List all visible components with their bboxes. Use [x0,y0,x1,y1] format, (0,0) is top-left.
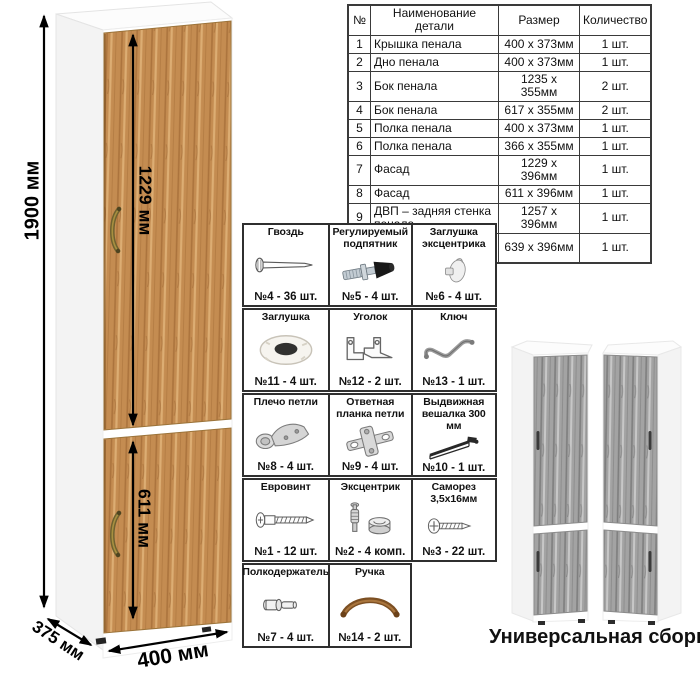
hardware-item-count: №10 - 1 шт. [422,462,485,474]
hardware-item-name: Ответная планка петли [331,397,411,421]
variant-cabinets [512,341,681,625]
height-dimension-label: 1900 мм [22,154,45,248]
cell-size: 400 х 373мм [499,53,580,71]
variant-handle [649,431,652,450]
bottom-door-dimension-label: 611 мм [134,479,155,559]
table-row: 5 Полка пенала 400 х 373мм 1 шт. [348,119,651,137]
cell-num: 2 [348,53,371,71]
hardware-item: Ключ №13 - 1 шт. [411,310,495,390]
hardware-item: Эксцентрик №2 - 4 комп. [328,480,412,560]
cell-size: 617 х 355мм [499,101,580,119]
cell-qty: 2 шт. [580,71,652,101]
cell-size: 639 х 396мм [499,233,580,263]
variant-handle [537,551,540,572]
hardware-row: Евровинт №1 - 12 шт. Эксцентрик [242,478,497,562]
bottom-door [104,428,231,633]
cell-qty: 1 шт. [580,119,652,137]
cell-qty: 1 шт. [580,53,652,71]
table-row: 7 Фасад 1229 х 396мм 1 шт. [348,155,651,185]
hardware-item: Гвоздь №4 - 36 шт. [244,225,328,305]
hardware-item-count: №12 - 2 шт. [339,376,402,388]
cell-qty: 1 шт. [580,185,652,203]
cell-name: Полка пенала [371,137,499,155]
hinge-plate-icon [333,421,407,462]
hardware-item: Заглушка №11 - 4 шт. [244,310,328,390]
cam-lock-icon [333,494,407,546]
cell-name: Бок пенала [371,101,499,119]
hardware-item-count: №13 - 1 шт. [422,376,485,388]
hardware-item-name: Заглушка эксцентрика [414,227,494,251]
table-row: 1 Крышка пенала 400 х 373мм 1 шт. [348,35,651,53]
hardware-row: Полкодержатель №7 - 4 шт. Ручка [242,563,412,648]
hardware-item: Саморез 3,5х16мм №3 - 22 шт. [411,480,495,560]
hardware-item: Ответная планка петли №9 - 4 шт. [328,395,412,475]
cell-qty: 1 шт. [580,35,652,53]
hardware-item-name: Саморез 3,5х16мм [414,482,494,506]
hardware-item: Евровинт №1 - 12 шт. [244,480,328,560]
hardware-item-name: Полкодержатель [242,567,329,579]
handle-icon [333,579,407,632]
main-cabinet [56,2,232,658]
header-qty: Количество [580,5,652,35]
corner-bracket-icon [333,324,407,376]
hardware-item: Регулируемый подпятник №5 - 4 шт. [328,225,412,305]
cell-qty: 1 шт. [580,203,652,233]
pullout-hanger-icon [417,432,491,462]
cell-num: 6 [348,137,371,155]
top-door-dimension-label: 1229 мм [135,158,156,244]
hardware-item-name: Ключ [440,312,467,324]
cell-size: 611 х 396мм [499,185,580,203]
hardware-item-name: Евровинт [261,482,311,494]
assembly-diagram-page: 1900 мм 1229 мм 611 мм 375 мм 400 мм № Н… [0,0,700,683]
table-row: 2 Дно пенала 400 х 373мм 1 шт. [348,53,651,71]
top-door [104,21,231,430]
header-size: Размер [499,5,580,35]
adjustable-foot-icon [333,251,407,292]
hardware-item-name: Ручка [355,567,385,579]
hardware-item-name: Гвоздь [268,227,304,239]
parts-table-header-row: № Наименование детали Размер Количество [348,5,651,35]
hardware-item-name: Эксцентрик [341,482,400,494]
hardware-item-count: №2 - 4 комп. [335,546,405,558]
nail-icon [249,239,323,291]
cell-name: Фасад [371,155,499,185]
table-row: 8 Фасад 611 х 396мм 1 шт. [348,185,651,203]
hinge-arm-icon [249,409,323,461]
cell-size: 400 х 373мм [499,35,580,53]
cell-qty: 1 шт. [580,137,652,155]
hardware-item-name: Выдвижная вешалка 300 мм [414,397,494,432]
cell-name: Фасад [371,185,499,203]
cap-icon [249,324,323,376]
cell-qty: 1 шт. [580,233,652,263]
cell-num: 5 [348,119,371,137]
table-row: 6 Полка пенала 366 х 355мм 1 шт. [348,137,651,155]
hardware-item-name: Уголок [353,312,387,324]
hardware-item: Плечо петли №8 - 4 шт. [244,395,328,475]
hardware-item-name: Плечо петли [254,397,318,409]
cell-size: 1229 х 396мм [499,155,580,185]
cell-qty: 2 шт. [580,101,652,119]
cell-size: 400 х 373мм [499,119,580,137]
hardware-item-name: Заглушка [262,312,310,324]
cell-size: 1257 х 396мм [499,203,580,233]
cell-num: 3 [348,71,371,101]
cell-num: 8 [348,185,371,203]
hardware-row: Плечо петли №8 - 4 шт. Ответная планка п… [242,393,497,477]
variant-caption: Универсальная сборка. [489,626,699,649]
hardware-item-count: №11 - 4 шт. [255,376,317,388]
hardware-item: Ручка №14 - 2 шт. [328,565,411,646]
hardware-item: Выдвижная вешалка 300 мм №10 - 1 шт. [411,395,495,475]
cell-name: Крышка пенала [371,35,499,53]
cell-num: 7 [348,155,371,185]
shelf-pin-icon [249,579,323,632]
cell-name: Дно пенала [371,53,499,71]
hardware-item-count: №6 - 4 шт. [426,291,482,303]
cell-size: 366 х 355мм [499,137,580,155]
hardware-grid: Гвоздь №4 - 36 шт. Регулируемый подпятни… [242,223,497,648]
hardware-item-count: №1 - 12 шт. [254,546,317,558]
hardware-item: Уголок №12 - 2 шт. [328,310,412,390]
key-icon [417,324,491,376]
euro-screw-icon [249,494,323,546]
variant-cabinet-right [603,341,681,625]
variant-handle [649,551,652,572]
header-name: Наименование детали [371,5,499,35]
cell-qty: 1 шт. [580,155,652,185]
hardware-item-count: №14 - 2 шт. [338,632,401,644]
hardware-item-count: №3 - 22 шт. [422,546,485,558]
table-row: 4 Бок пенала 617 х 355мм 2 шт. [348,101,651,119]
hardware-item: Заглушка эксцентрика №6 - 4 шт. [411,225,495,305]
header-num: № [348,5,371,35]
hardware-row: Заглушка №11 - 4 шт. Уголок [242,308,497,392]
hardware-item: Полкодержатель №7 - 4 шт. [244,565,328,646]
screw-icon [417,506,491,547]
variant-cabinet-left [512,341,592,625]
cell-name: Полка пенала [371,119,499,137]
cell-size: 1235 х 355мм [499,71,580,101]
cell-name: Бок пенала [371,71,499,101]
hardware-item-count: №5 - 4 шт. [342,291,398,303]
hardware-item-count: №4 - 36 шт. [254,291,317,303]
cabinet-side-panel [56,14,103,650]
hardware-item-count: №8 - 4 шт. [258,461,314,473]
hardware-row: Гвоздь №4 - 36 шт. Регулируемый подпятни… [242,223,497,307]
hardware-item-count: №9 - 4 шт. [342,461,398,473]
cam-cover-icon [417,251,491,292]
table-row: 3 Бок пенала 1235 х 355мм 2 шт. [348,71,651,101]
cell-num: 4 [348,101,371,119]
variant-handle [537,431,540,450]
hardware-item-name: Регулируемый подпятник [331,227,411,251]
hardware-item-count: №7 - 4 шт. [258,632,314,644]
cell-num: 1 [348,35,371,53]
